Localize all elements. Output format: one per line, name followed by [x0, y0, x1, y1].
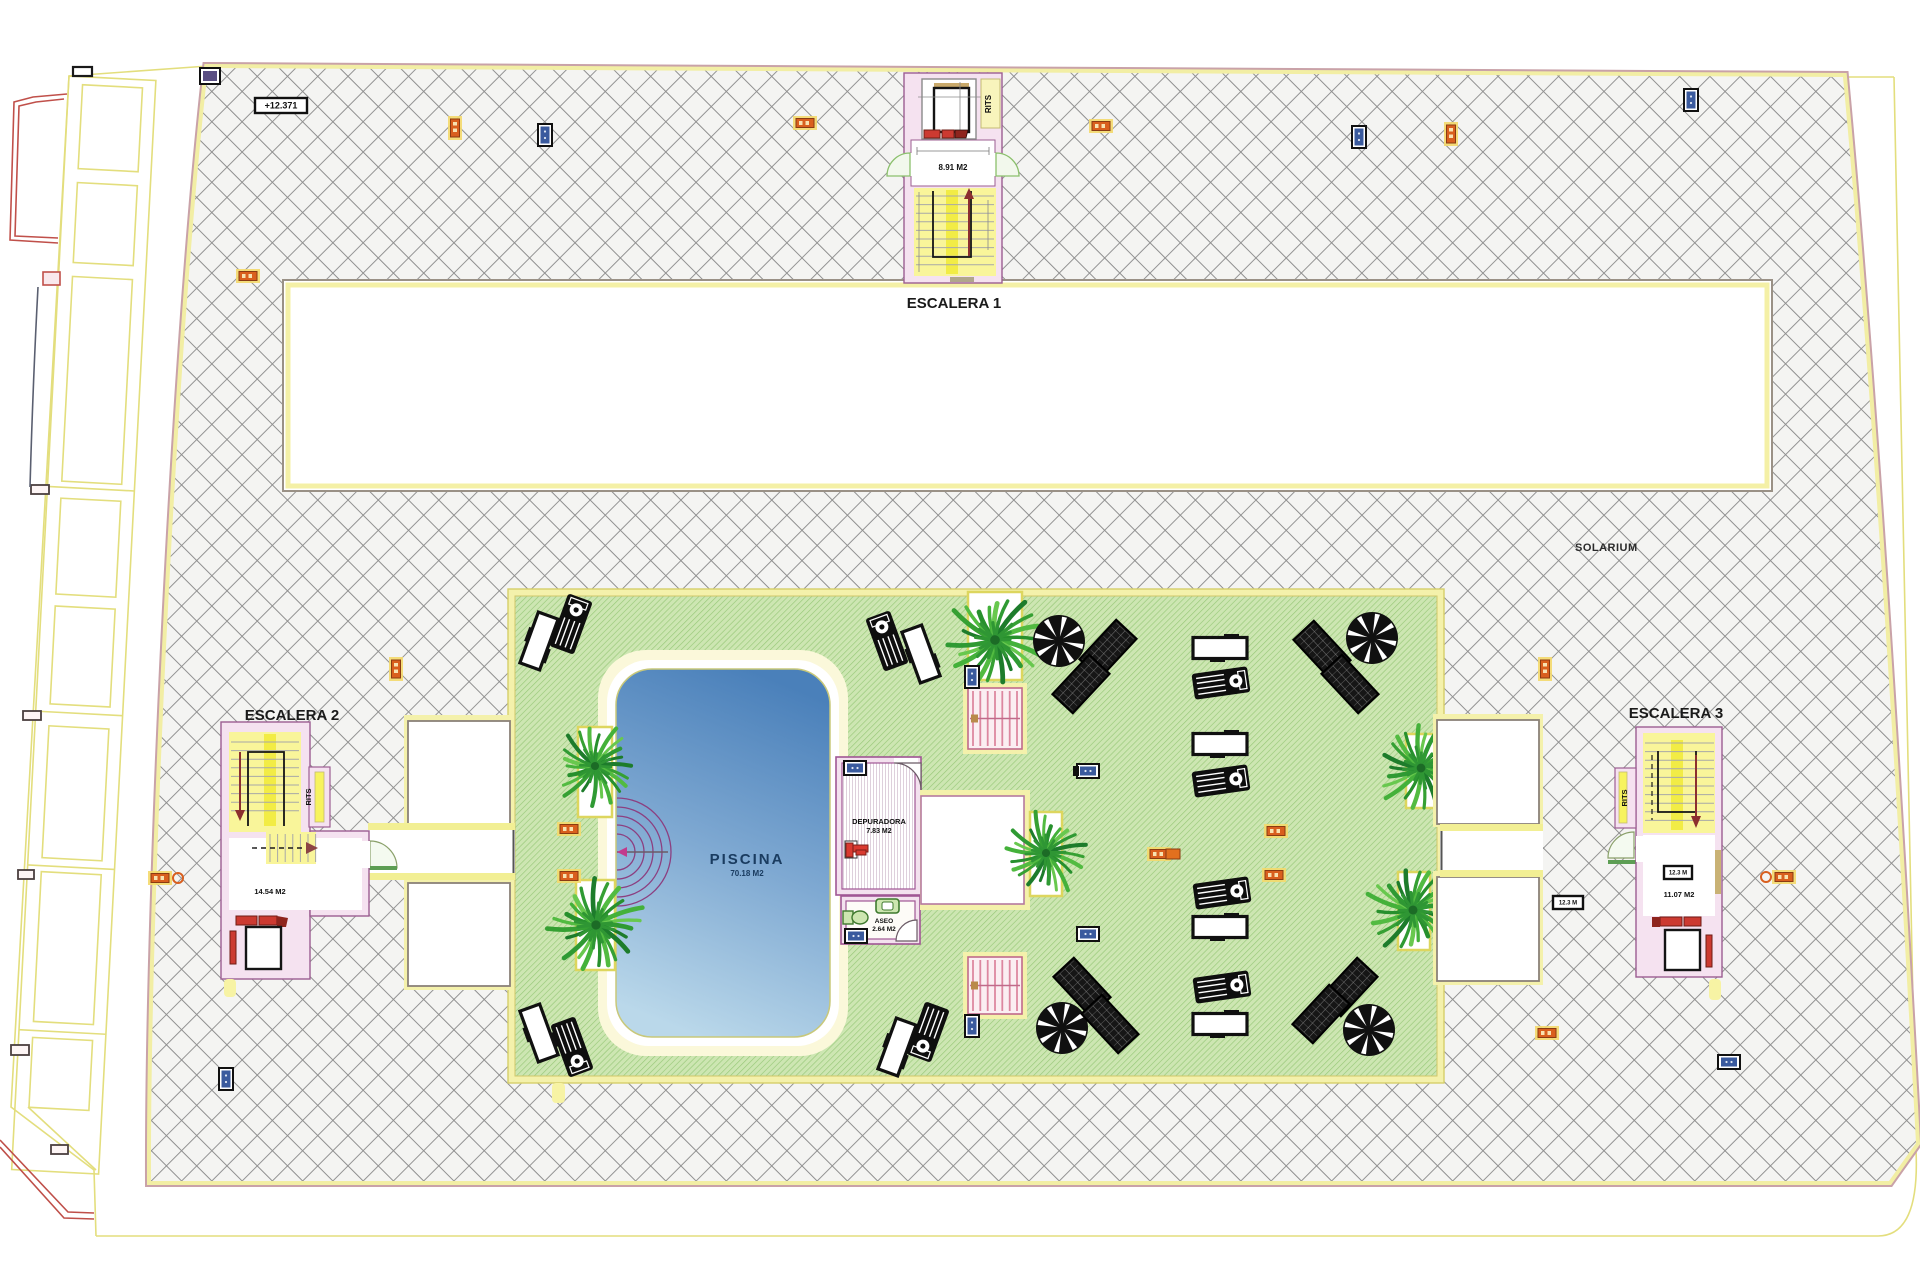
svg-text:PISCINA: PISCINA: [710, 851, 785, 868]
svg-text:ESCALERA 1: ESCALERA 1: [907, 295, 1001, 312]
svg-text:12.3 M: 12.3 M: [1559, 901, 1577, 907]
svg-text:+12.371: +12.371: [265, 101, 298, 111]
svg-text:14.54 M2: 14.54 M2: [254, 887, 285, 896]
svg-text:ESCALERA 3: ESCALERA 3: [1629, 705, 1723, 722]
svg-text:RITS: RITS: [984, 94, 993, 113]
svg-text:11.07 M2: 11.07 M2: [1664, 890, 1695, 899]
svg-text:8.91 M2: 8.91 M2: [939, 163, 968, 172]
svg-text:70.18 M2: 70.18 M2: [730, 869, 764, 878]
svg-text:DEPURADORA: DEPURADORA: [852, 817, 906, 826]
svg-text:SOLARIUM: SOLARIUM: [1575, 542, 1638, 554]
svg-text:12.3 M: 12.3 M: [1669, 871, 1687, 877]
svg-text:ESCALERA 2: ESCALERA 2: [245, 707, 339, 724]
svg-text:RITS: RITS: [304, 788, 313, 805]
svg-text:7.83 M2: 7.83 M2: [866, 828, 891, 835]
svg-text:RITS: RITS: [1620, 789, 1629, 806]
svg-text:2.64 M2: 2.64 M2: [872, 926, 896, 933]
svg-text:ASEO: ASEO: [875, 918, 893, 925]
